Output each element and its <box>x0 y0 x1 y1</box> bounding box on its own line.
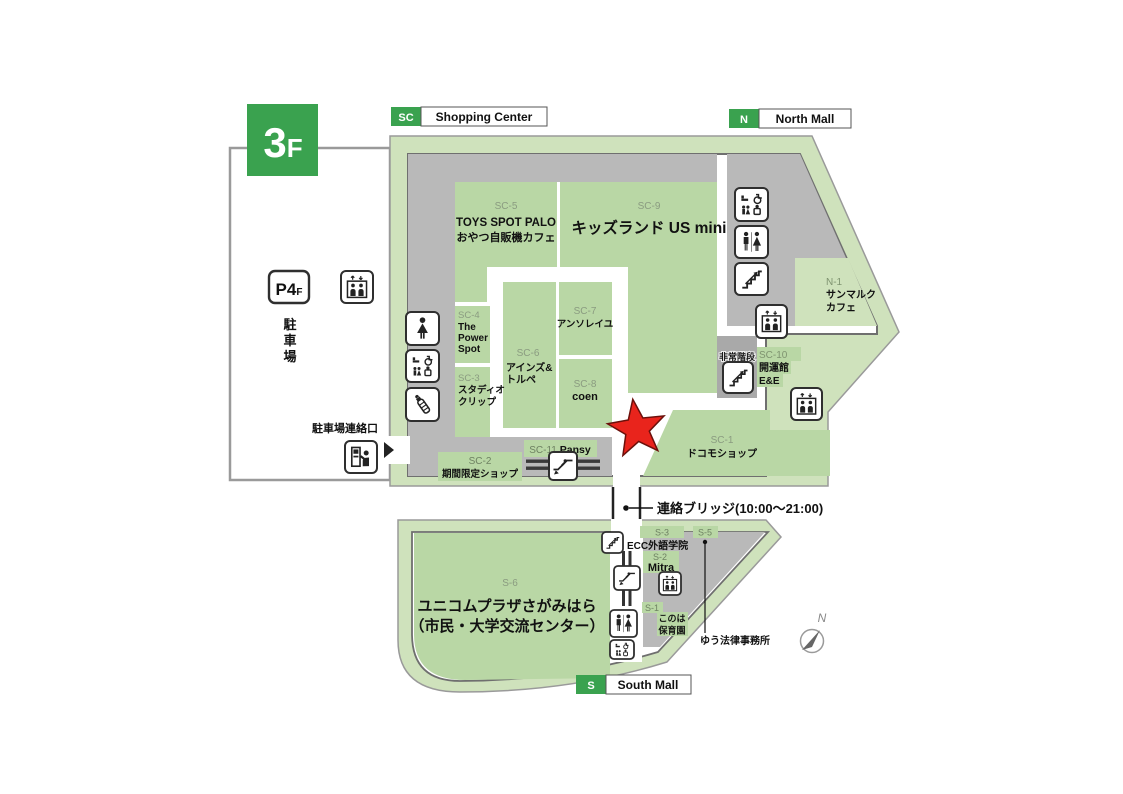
svg-text:場: 場 <box>283 349 296 364</box>
shop-sc10-name2: E&E <box>759 376 780 387</box>
svg-text:South Mall: South Mall <box>618 678 679 692</box>
legend-shopping-center: SC Shopping Center <box>391 107 547 126</box>
shop-sc9-name: キッズランド US mini <box>571 218 726 237</box>
shop-s3-name: ECC外語学院 <box>627 539 688 552</box>
shop-n1-code: N-1 <box>826 277 843 288</box>
elevator-icon <box>341 271 373 303</box>
shop-sc1-name: ドコモショップ <box>687 447 758 460</box>
elevator-icon <box>791 388 822 420</box>
shop-sc6-code: SC-6 <box>517 348 540 359</box>
svg-text:車: 車 <box>283 333 296 348</box>
svg-text:駐: 駐 <box>283 317 296 332</box>
legend-north-mall: N North Mall <box>729 109 851 128</box>
shop-sc5-name2: おやつ自販機カフェ <box>457 230 556 244</box>
multifunction-toilet-icon <box>610 640 634 659</box>
shop-sc4-code: SC-4 <box>458 310 480 321</box>
shop-s6-name2: （市民・大学交流センター） <box>409 617 604 635</box>
svg-text:North Mall: North Mall <box>776 112 835 126</box>
s5-marker-dot <box>703 540 707 544</box>
shop-sc3-name1: スタディオ <box>458 384 505 396</box>
shop-sc3-code: SC-3 <box>458 373 480 384</box>
shop-sc10-name1: 開運館 <box>759 361 789 374</box>
legend-south-mall: S South Mall <box>576 675 691 694</box>
womens-restroom-icon <box>406 312 439 345</box>
stairs-icon <box>602 532 623 553</box>
shop-s6-code: S-6 <box>502 578 518 589</box>
shop-s1-name2: 保育園 <box>657 625 685 636</box>
shop-s1-code: S-1 <box>645 603 659 613</box>
payment-machine-icon <box>345 441 377 473</box>
shop-sc9-code: SC-9 <box>638 201 661 212</box>
shop-s2-code: S-2 <box>653 552 667 562</box>
nursing-room-icon <box>406 388 439 421</box>
shop-sc7-code: SC-7 <box>574 306 597 317</box>
emergency-stairs-label: 非常階段 <box>719 351 756 362</box>
restroom-icon <box>610 610 637 637</box>
shop-s6-name1: ユニコムプラザさがみはら <box>417 597 596 615</box>
shop-sc1-code: SC-1 <box>711 435 734 446</box>
shop-sc7-name: アンソレイユ <box>557 319 613 330</box>
svg-text:SC: SC <box>398 112 413 124</box>
compass-north-label: N <box>818 611 827 625</box>
shop-sc6-name1: アインズ& <box>506 361 553 374</box>
elevator-icon <box>659 572 681 595</box>
svg-text:S: S <box>587 680 594 692</box>
corridor-top <box>408 154 717 182</box>
parking-gate-label: 駐車場連絡口 <box>312 421 378 435</box>
multifunction-toilet-icon <box>406 350 439 382</box>
shop-sc4-name3: Spot <box>458 344 481 355</box>
shop-sc4-name2: Power <box>458 333 488 344</box>
bridge-marker-dot <box>623 505 629 511</box>
shop-n1-name1: サンマルク <box>826 289 876 301</box>
parking-level-badge: P4F <box>269 271 309 303</box>
floor-map-canvas: 3F P4F 駐 車 場 SC Shopping Center N North … <box>0 0 1123 794</box>
shop-sc2-name: 期間限定ショップ <box>442 468 519 480</box>
shop-sc4-name1: The <box>458 322 476 333</box>
shop-sc10-code: SC-10 <box>759 350 788 361</box>
shop-sc8-code: SC-8 <box>574 379 597 390</box>
emergency-stairs-icon <box>723 362 753 393</box>
shop-s1-name1: このは <box>658 614 685 624</box>
shop-sc5-name1: TOYS SPOT PALO <box>456 217 556 229</box>
elevator-icon <box>756 305 787 338</box>
svg-text:N: N <box>740 114 748 126</box>
shop-sc2-code: SC-2 <box>469 456 492 467</box>
bridge-label: 連絡ブリッジ(10:00〜21:00) <box>657 501 823 516</box>
shop-sc3-name2: クリップ <box>458 396 497 408</box>
floor-map: 3F P4F 駐 車 場 SC Shopping Center N North … <box>0 0 1123 794</box>
shop-s5-code: S-5 <box>698 528 712 538</box>
restroom-icon <box>735 226 768 258</box>
shop-s3-code: S-3 <box>655 528 669 538</box>
shop-sc6-name2: トルペ <box>506 374 536 386</box>
parking-name: 駐 車 場 <box>283 317 296 364</box>
compass-icon: N <box>801 611 827 653</box>
shop-sc5-code: SC-5 <box>495 201 518 212</box>
svg-text:Shopping Center: Shopping Center <box>436 110 533 124</box>
shop-n1-name2: カフェ <box>826 302 856 314</box>
multifunction-toilet-icon <box>735 188 768 221</box>
stairs-icon <box>735 263 768 295</box>
law-office-label: ゆう法律事務所 <box>700 634 770 647</box>
shop-sc8-name: coen <box>572 391 598 403</box>
